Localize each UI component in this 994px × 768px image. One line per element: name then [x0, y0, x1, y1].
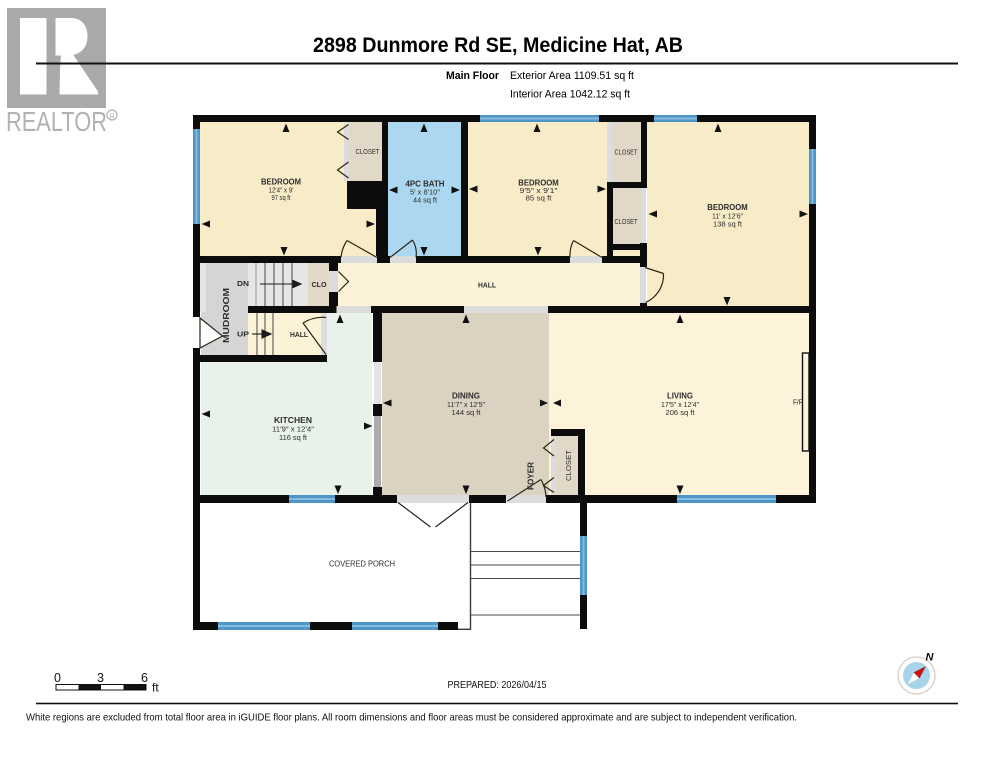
svg-text:CLO: CLO	[312, 280, 327, 289]
svg-text:COVERED PORCH: COVERED PORCH	[329, 560, 395, 569]
svg-text:97 sq ft: 97 sq ft	[272, 193, 292, 202]
svg-text:0: 0	[54, 671, 61, 685]
svg-text:PREPARED: 2026/04/15: PREPARED: 2026/04/15	[448, 679, 547, 691]
svg-text:UP: UP	[237, 330, 249, 339]
svg-text:HALL: HALL	[478, 281, 496, 290]
svg-text:CLOSET: CLOSET	[356, 149, 381, 156]
svg-text:6: 6	[141, 671, 148, 685]
svg-text:Interior Area 1042.12 sq ft: Interior Area 1042.12 sq ft	[510, 89, 630, 101]
svg-text:REALTOR: REALTOR	[6, 106, 107, 137]
svg-text:R: R	[109, 112, 115, 121]
svg-text:3: 3	[97, 671, 104, 685]
svg-text:N: N	[926, 652, 935, 664]
svg-text:116 sq ft: 116 sq ft	[279, 433, 308, 442]
svg-text:MUDROOM: MUDROOM	[222, 288, 231, 343]
svg-text:DN: DN	[237, 279, 249, 288]
svg-text:2898 Dunmore Rd SE, Medicine H: 2898 Dunmore Rd SE, Medicine Hat, AB	[313, 34, 683, 57]
svg-text:HALL: HALL	[290, 330, 308, 339]
svg-text:CLOSET: CLOSET	[566, 449, 573, 481]
svg-text:144 sq ft: 144 sq ft	[452, 408, 482, 417]
svg-text:Main Floor: Main Floor	[446, 70, 500, 82]
svg-text:CLOSET: CLOSET	[615, 219, 639, 226]
svg-text:138 sq ft: 138 sq ft	[713, 220, 743, 229]
svg-text:CLOSET: CLOSET	[615, 150, 639, 157]
svg-text:85 sq ft: 85 sq ft	[526, 194, 553, 203]
svg-text:F/P: F/P	[793, 400, 803, 407]
svg-text:White regions are excluded fro: White regions are excluded from total fl…	[26, 713, 797, 724]
svg-text:FOYER: FOYER	[527, 462, 536, 490]
svg-text:206 sq ft: 206 sq ft	[666, 408, 696, 417]
svg-text:Exterior Area 1109.51 sq ft: Exterior Area 1109.51 sq ft	[510, 70, 634, 82]
svg-text:44 sq ft: 44 sq ft	[413, 196, 438, 205]
svg-text:ft: ft	[152, 681, 159, 695]
